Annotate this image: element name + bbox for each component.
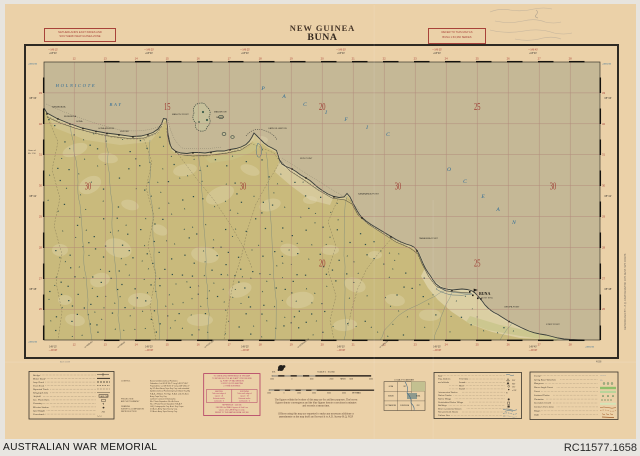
svg-text:30: 30 <box>240 182 247 193</box>
svg-text:15: 15 <box>166 57 170 61</box>
svg-text:ISLAND: ISLAND <box>216 116 224 119</box>
svg-text:C: C <box>386 132 390 138</box>
svg-text:23: 23 <box>414 342 418 346</box>
svg-text:25: 25 <box>474 102 481 113</box>
svg-text:Mangrove: Mangrove <box>533 383 543 385</box>
svg-text:Contours Form Lines: Contours Form Lines <box>534 406 554 409</box>
svg-text:First Class: First Class <box>458 378 468 381</box>
svg-text:2/1 Aust. Army Topo Survey Coy: 2/1 Aust. Army Topo Survey Coy. <box>150 410 178 413</box>
svg-text:32: 32 <box>602 122 606 126</box>
svg-text:Uninhabited Native Village: Uninhabited Native Village <box>438 401 463 404</box>
svg-text:Spot Height: Spot Height <box>33 409 45 412</box>
svg-text:—148 20′: —148 20′ <box>144 50 154 52</box>
svg-text:LOCALITY DIAGRAM: LOCALITY DIAGRAM <box>394 379 414 382</box>
svg-text:+08°00′: +08°00′ <box>49 53 57 55</box>
svg-text:⌃⌃⌃: ⌃⌃⌃ <box>600 375 606 378</box>
svg-text:29: 29 <box>39 215 43 219</box>
svg-text:to IORMA: to IORMA <box>117 340 127 348</box>
svg-text:+08°00′: +08°00′ <box>433 53 441 55</box>
svg-text:27: 27 <box>538 342 542 346</box>
svg-text:+08mmN: +08mmN <box>602 64 611 66</box>
svg-text:Spring Reed, Waterhole: Spring Reed, Waterhole <box>534 378 556 381</box>
svg-text:26: 26 <box>507 57 511 61</box>
svg-text:20: 20 <box>319 259 326 270</box>
svg-text:148°20′: 148°20′ <box>145 347 153 349</box>
svg-text:0: 0 <box>284 393 285 395</box>
svg-text:TARAKENA POINT: TARAKENA POINT <box>419 237 438 240</box>
svg-text:+08°00′: +08°00′ <box>337 53 345 55</box>
svg-text:19: 19 <box>290 342 294 346</box>
svg-text:21: 21 <box>352 57 356 61</box>
svg-text:960′: 960′ <box>512 383 516 385</box>
svg-text:—08 08′: —08 08′ <box>529 350 538 352</box>
svg-text:★: ★ <box>506 392 508 395</box>
svg-text:DRAWING: DRAWING <box>121 405 131 408</box>
svg-text:OPI: OPI <box>403 386 406 388</box>
svg-text:Reef: Reef <box>437 374 442 377</box>
svg-text:Native Garden: Native Garden <box>437 394 452 397</box>
svg-text:+08°00′: +08°00′ <box>529 53 537 55</box>
svg-text:8th. Photo Squadron 5th. Air F: 8th. Photo Squadron 5th. Air Force <box>150 400 179 403</box>
svg-text:0: 0 <box>291 378 292 380</box>
svg-text:HOLNICOTE: HOLNICOTE <box>55 83 97 88</box>
svg-text:GONA MISSION: GONA MISSION <box>98 127 115 130</box>
svg-text:19: 19 <box>290 57 294 61</box>
svg-text:N: N <box>511 220 516 226</box>
svg-text:Foot Track: Foot Track <box>32 384 45 387</box>
svg-text:30: 30 <box>550 182 557 193</box>
svg-text:✝: ✝ <box>102 402 105 406</box>
svg-text:1000: 1000 <box>297 393 301 395</box>
svg-text:Grasslands: Grasslands <box>33 413 44 416</box>
svg-text:Astronomical Station: Astronomical Station <box>437 391 458 394</box>
svg-text:WYE POINT: WYE POINT <box>300 158 313 160</box>
svg-text:17: 17 <box>228 342 232 346</box>
svg-text:3000: 3000 <box>349 378 353 380</box>
svg-text:32: 32 <box>39 122 43 126</box>
svg-text:Bridge: Bridge <box>33 374 41 377</box>
svg-text:and seconds at mean time.: and seconds at mean time. <box>302 404 330 407</box>
svg-text:A: A <box>281 94 286 100</box>
svg-text:3000: 3000 <box>327 393 331 395</box>
svg-text:O: O <box>447 167 451 173</box>
svg-text:—08 08′: —08 08′ <box>49 350 58 352</box>
svg-text:Fourth: Fourth <box>458 388 465 391</box>
svg-text:+08mmN: +08mmN <box>28 64 37 66</box>
svg-text:x 203′: x 203′ <box>512 390 517 392</box>
svg-text:08°48′: 08°48′ <box>604 287 612 291</box>
svg-text:Popondetta: Lat 08°45′47.6″ Lo: Popondetta: Lat 08°45′47.6″ Long 148°14′… <box>150 385 190 388</box>
svg-text:27: 27 <box>39 276 43 280</box>
svg-text:DOBODURA: DOBODURA <box>400 404 409 407</box>
svg-text:Plantation: Plantation <box>533 398 545 401</box>
svg-text:15: 15 <box>166 342 170 346</box>
svg-text:28: 28 <box>569 342 573 346</box>
svg-text:Based on Astronomical Position: Based on Astronomical Positions <box>150 380 178 383</box>
svg-text:25: 25 <box>474 259 481 270</box>
svg-text:KIWORO: KIWORO <box>120 131 129 133</box>
svg-text:GONA: GONA <box>389 385 393 388</box>
svg-text:4000: 4000 <box>342 393 346 395</box>
svg-text:28: 28 <box>39 245 43 249</box>
svg-text:KUMUSI: KUMUSI <box>388 395 394 397</box>
svg-text:northwards : 6: northwards : 6 <box>239 399 250 402</box>
svg-text:33: 33 <box>602 91 606 95</box>
svg-text:23: 23 <box>414 57 418 61</box>
svg-text:REPRODUCTION: REPRODUCTION <box>121 411 137 413</box>
svg-text:Fathom Line: Fathom Line <box>437 414 450 417</box>
svg-text:—08 08′: —08 08′ <box>337 350 346 352</box>
svg-text:CAPE KILLERTON: CAPE KILLERTON <box>268 127 287 130</box>
svg-text:+08mmN: +08mmN <box>28 342 37 344</box>
svg-text:Non perennial Stream: Non perennial Stream <box>437 411 458 414</box>
svg-text:STRIP POINT: STRIP POINT <box>546 324 560 326</box>
svg-text:2. THEN NORTHING: 2. THEN NORTHING <box>223 386 241 388</box>
svg-text:—148 15′: —148 15′ <box>48 50 58 52</box>
svg-text:REFER TO THIS MAP AS BUNA 1:6: REFER TO THIS MAP AS BUNA 1:63,360 <box>215 411 249 414</box>
svg-text:30: 30 <box>602 184 606 188</box>
svg-text:18: 18 <box>259 342 263 346</box>
svg-text:20: 20 <box>321 342 325 346</box>
svg-text:Secondary Growth: Secondary Growth <box>534 402 552 405</box>
svg-text:METRES: METRES <box>352 393 360 395</box>
svg-text:A: A <box>495 207 500 213</box>
svg-text:08°48′: 08°48′ <box>29 287 37 291</box>
svg-text:1000: 1000 <box>310 378 314 380</box>
svg-text:30: 30 <box>395 182 402 193</box>
svg-text:205′: 205′ <box>512 387 516 389</box>
svg-text:—148 40′: —148 40′ <box>528 50 538 52</box>
svg-text:20: 20 <box>321 57 325 61</box>
svg-text:4000: 4000 <box>369 378 373 380</box>
svg-text:148°40′: 148°40′ <box>529 347 537 349</box>
svg-text:Forest: Forest <box>533 390 540 393</box>
svg-text:SANANANDA POINT: SANANANDA POINT <box>358 193 379 196</box>
svg-text:Reported Track: Reported Track <box>32 388 49 391</box>
svg-text:CONTROL: CONTROL <box>121 381 130 383</box>
svg-text:OIVI: OIVI <box>416 405 420 407</box>
svg-text:.762: .762 <box>101 411 106 413</box>
svg-text:26: 26 <box>507 342 511 346</box>
svg-text:YARDS: YARDS <box>340 377 347 380</box>
svg-text:22: 22 <box>383 57 387 61</box>
svg-text:31: 31 <box>602 153 606 157</box>
svg-text:148°35′: 148°35′ <box>433 347 441 349</box>
svg-text:SCALE 1 : 63,360: SCALE 1 : 63,360 <box>317 370 335 373</box>
svg-text:25: 25 <box>476 342 480 346</box>
svg-text:14: 14 <box>135 57 139 61</box>
svg-text:Army Topo Svy Coy.: Army Topo Svy Coy. <box>150 395 167 398</box>
svg-text:27: 27 <box>602 276 606 280</box>
svg-text:Cemetery: Cemetery <box>33 402 43 405</box>
svg-text:24: 24 <box>445 57 449 61</box>
svg-text:2000: 2000 <box>330 378 334 380</box>
svg-text:C: C <box>303 102 307 108</box>
svg-text:08°42′: 08°42′ <box>604 194 612 198</box>
svg-text:28: 28 <box>569 57 573 61</box>
svg-text:River w perennial Stream: River w perennial Stream <box>437 407 462 410</box>
svg-text:27: 27 <box>538 57 542 61</box>
svg-text:GONA: GONA <box>76 120 83 123</box>
svg-text:16: 16 <box>197 57 201 61</box>
svg-text:08°36′: 08°36′ <box>29 96 37 100</box>
svg-text:∴∴∴: ∴∴∴ <box>97 415 102 418</box>
svg-text:12: 12 <box>73 57 77 61</box>
svg-text:BUNA: BUNA <box>479 291 490 296</box>
svg-text:Dense Jungle Forest: Dense Jungle Forest <box>533 386 553 389</box>
svg-text:12: 12 <box>73 342 77 346</box>
svg-text:18: 18 <box>259 57 263 61</box>
svg-text:BUNEBUNA: BUNEBUNA <box>64 115 77 118</box>
svg-text:26: 26 <box>602 307 606 311</box>
svg-text:21: 21 <box>352 342 356 346</box>
svg-text:BASABUAGA: BASABUAGA <box>52 106 66 109</box>
svg-text:REPRODUCED BY L.H.Q. CARTOGRAP: REPRODUCED BY L.H.Q. CARTOGRAPHIC COY. A… <box>624 253 627 330</box>
svg-text:to SOPUTA: to SOPUTA <box>379 340 389 349</box>
svg-text:LHQ Cartographic Coy. Aust. Sv: LHQ Cartographic Coy. Aust. Svy Corps <box>150 405 184 408</box>
svg-text:C: C <box>463 179 467 185</box>
svg-text:28: 28 <box>602 245 606 249</box>
svg-text:Native Village: Native Village <box>437 398 451 401</box>
svg-text:08°42′: 08°42′ <box>29 194 37 198</box>
svg-text:33: 33 <box>39 91 43 95</box>
svg-text:148°30′: 148°30′ <box>337 347 345 349</box>
svg-text:16: 16 <box>197 342 201 346</box>
svg-text:+08°00′: +08°00′ <box>241 53 249 55</box>
svg-text:+08mmN: +08mmN <box>585 347 594 349</box>
svg-text:Cliffs: Cliffs <box>534 413 539 416</box>
svg-text:24: 24 <box>445 342 449 346</box>
svg-text:AIR PHOTOGRAPHY: AIR PHOTOGRAPHY <box>121 400 140 403</box>
svg-text:148°15′: 148°15′ <box>49 347 57 349</box>
svg-text:to AMBASI: to AMBASI <box>84 340 94 349</box>
svg-text:—148 35′: —148 35′ <box>432 50 442 52</box>
svg-text:31: 31 <box>39 153 43 157</box>
svg-text:F: F <box>343 117 348 123</box>
svg-text:Trig. Stations: Trig. Stations <box>438 378 450 381</box>
svg-text:BAY: BAY <box>109 102 122 107</box>
svg-text:17: 17 <box>228 57 232 61</box>
svg-text:13: 13 <box>104 342 108 346</box>
svg-text:by Astronomical Positioning by: by Astronomical Positioning by 2/1 Aust … <box>150 390 190 393</box>
svg-text:14: 14 <box>135 342 139 346</box>
svg-text:Gona of: Gona of <box>28 150 36 152</box>
svg-text:30: 30 <box>85 182 92 193</box>
svg-text:15: 15 <box>164 102 171 113</box>
svg-text:—148 25′: —148 25′ <box>240 50 250 52</box>
svg-text:29: 29 <box>602 215 606 219</box>
svg-text:2000: 2000 <box>312 393 316 395</box>
svg-text:MANUTU POINT: MANUTU POINT <box>172 113 189 116</box>
svg-text:Mt. 1 M.: Mt. 1 M. <box>28 152 36 155</box>
svg-text:+08°00′: +08°00′ <box>145 53 153 55</box>
svg-text:and altitude: and altitude <box>438 381 449 384</box>
svg-text:M.S.: M.S. <box>272 371 276 373</box>
svg-text:26: 26 <box>39 307 43 311</box>
svg-text:amendments on the map itself a: amendments on the map itself and forward… <box>279 416 354 419</box>
svg-text:30: 30 <box>39 184 43 188</box>
svg-text:—148 30′: —148 30′ <box>336 50 346 52</box>
svg-text:148°25′: 148°25′ <box>241 347 249 349</box>
svg-text:≈≈: ≈≈ <box>600 379 603 382</box>
svg-text:25: 25 <box>476 57 480 61</box>
svg-text:1000: 1000 <box>267 393 271 395</box>
svg-text:1000: 1000 <box>270 378 274 380</box>
svg-text:Scattered Timber: Scattered Timber <box>534 394 550 397</box>
svg-text:MANGROVE: MANGROVE <box>214 111 227 114</box>
svg-text:P: P <box>260 86 265 92</box>
svg-text:Airfield: Airfield <box>32 395 41 398</box>
svg-text:—08 08′: —08 08′ <box>241 350 250 352</box>
svg-text:13: 13 <box>104 57 108 61</box>
svg-text:MT TRAFFORD: MT TRAFFORD <box>385 404 397 407</box>
svg-text:08°36′: 08°36′ <box>604 96 612 100</box>
svg-text:eastwards : 3: eastwards : 3 <box>214 399 224 402</box>
svg-text:—08 08′: —08 08′ <box>433 350 442 352</box>
svg-text:LAND TML: LAND TML <box>100 395 108 398</box>
svg-text:Buildings: Buildings <box>438 405 447 407</box>
svg-text:950′: 950′ <box>512 380 516 382</box>
svg-text:—08 08′: —08 08′ <box>145 350 154 352</box>
svg-text:E: E <box>480 194 485 200</box>
svg-text:Ridges: Ridges <box>533 411 540 413</box>
svg-text:GIROPA POINT: GIROPA POINT <box>504 306 520 309</box>
svg-text:(GOVT STN): (GOVT STN) <box>481 298 493 300</box>
